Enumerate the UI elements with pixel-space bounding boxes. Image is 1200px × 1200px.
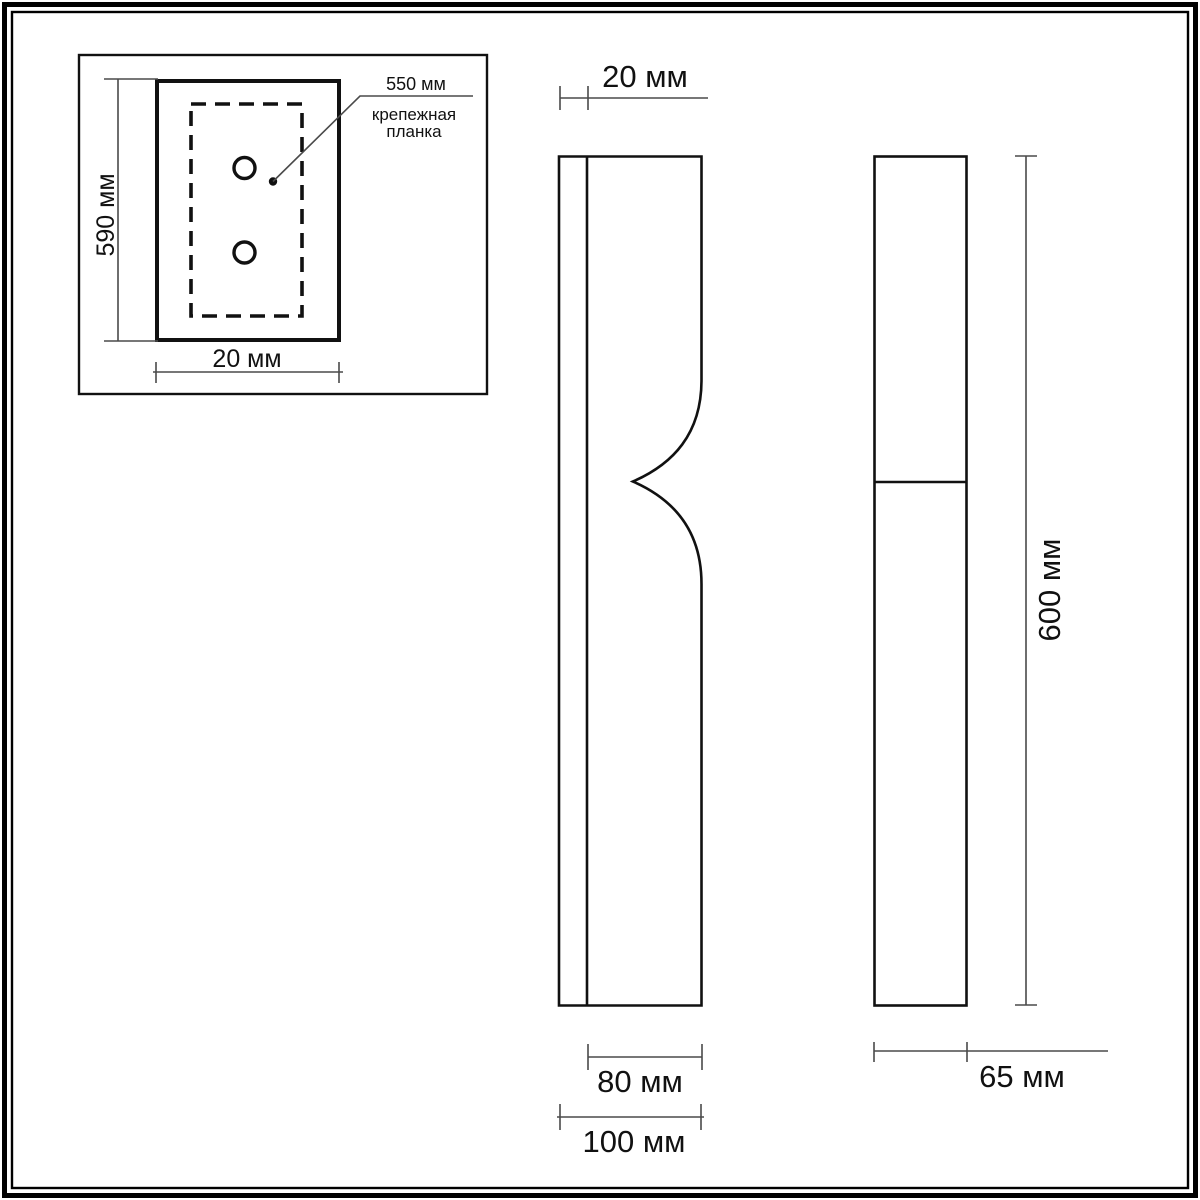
inset-width-dim-label: 20 мм (212, 345, 281, 373)
outer-frame (5, 5, 1196, 1196)
side-height-dimension: 600 мм (1015, 156, 1067, 1005)
front-depth-dimension: 20 мм (560, 59, 708, 110)
front-view-outline (559, 157, 702, 1006)
side-height-dim-label: 600 мм (1032, 539, 1067, 642)
inset-height-dimension: 590 мм (92, 79, 158, 341)
mounting-bar-dashed-outline (191, 104, 302, 316)
side-depth-dimension: 65 мм (874, 1042, 1108, 1094)
technical-drawing: 550 мм крепежная планка 590 мм 20 мм 20 … (0, 0, 1200, 1200)
front-overall-width-dim-label: 100 мм (583, 1124, 686, 1159)
plate-length-dim-label: 550 мм (386, 74, 446, 94)
inner-frame (12, 12, 1188, 1188)
backplate-outline (157, 81, 339, 340)
plate-name-line2: планка (386, 122, 442, 141)
inset-width-dimension: 20 мм (153, 345, 343, 383)
side-view: 600 мм 65 мм (874, 156, 1108, 1094)
inset-height-dim-label: 590 мм (92, 173, 120, 256)
front-view: 20 мм 80 мм 100 мм (557, 59, 708, 1159)
front-overall-width-dimension: 100 мм (557, 1104, 704, 1159)
screw-hole-top (234, 158, 255, 179)
front-depth-dim-label: 20 мм (602, 59, 688, 94)
side-depth-dim-label: 65 мм (979, 1059, 1065, 1094)
screw-hole-bottom (234, 242, 255, 263)
side-view-outline (875, 157, 967, 1006)
mounting-detail-panel: 550 мм крепежная планка 590 мм 20 мм (79, 55, 487, 394)
front-body-width-dimension: 80 мм (588, 1044, 702, 1099)
front-body-width-dim-label: 80 мм (597, 1064, 683, 1099)
